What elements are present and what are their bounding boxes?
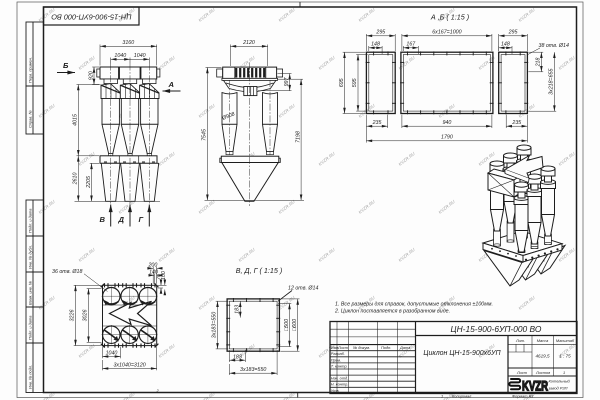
svg-text:KVZR: KVZR xyxy=(522,379,548,394)
svg-text:KVZR.RU: KVZR.RU xyxy=(38,102,57,118)
svg-text:№ докум.: № докум. xyxy=(353,345,370,350)
svg-text:183: 183 xyxy=(235,305,241,314)
svg-text:ЦН-15-900-6УП-000 ВО: ЦН-15-900-6УП-000 ВО xyxy=(451,324,542,334)
svg-text:KVZR.RU: KVZR.RU xyxy=(518,294,537,310)
svg-text:Перв. примен.: Перв. примен. xyxy=(28,57,33,83)
svg-text:997: 997 xyxy=(284,77,290,87)
svg-text:1040: 1040 xyxy=(114,53,126,59)
svg-text:235: 235 xyxy=(372,120,382,126)
svg-text:KVZR.RU: KVZR.RU xyxy=(558,54,577,70)
svg-text:148: 148 xyxy=(501,42,510,48)
svg-text:295: 295 xyxy=(375,30,385,36)
svg-text:Подп. и дата: Подп. и дата xyxy=(28,315,33,340)
svg-text:Взам. инв. №: Взам. инв. № xyxy=(28,280,33,305)
svg-text:KVZR.RU: KVZR.RU xyxy=(278,294,297,310)
svg-text:KVZR.RU: KVZR.RU xyxy=(518,6,537,22)
svg-text:Циклон ЦН-15-900х6УП: Циклон ЦН-15-900х6УП xyxy=(423,350,501,357)
svg-text:KVZR.RU: KVZR.RU xyxy=(398,246,417,262)
svg-text:3160: 3160 xyxy=(122,40,134,46)
svg-text:3x1040=3120: 3x1040=3120 xyxy=(113,362,145,368)
svg-text:Н. контр.: Н. контр. xyxy=(331,382,349,387)
svg-text:Разраб.: Разраб. xyxy=(331,351,345,356)
svg-text:1040: 1040 xyxy=(106,350,118,356)
svg-text:200: 200 xyxy=(147,262,157,268)
svg-text:Масса: Масса xyxy=(537,338,549,343)
svg-text:ЦН-15-900-6УП-000 ВО: ЦН-15-900-6УП-000 ВО xyxy=(51,13,131,22)
svg-text:Инв. № дубл.: Инв. № дубл. xyxy=(28,245,33,269)
svg-text:Подп. и дата: Подп. и дата xyxy=(28,208,33,233)
svg-text:920: 920 xyxy=(89,71,95,80)
svg-text:183: 183 xyxy=(233,354,242,360)
svg-text:KVZR.RU: KVZR.RU xyxy=(198,6,217,22)
svg-text:□600: □600 xyxy=(292,319,298,331)
svg-text:KVZR.RU: KVZR.RU xyxy=(78,246,97,262)
svg-text:Формат А3: Формат А3 xyxy=(512,393,534,398)
svg-text:Котельный: Котельный xyxy=(549,379,571,384)
svg-text:38 отв. Ø14: 38 отв. Ø14 xyxy=(539,43,569,49)
svg-text:KVZR.RU: KVZR.RU xyxy=(158,246,177,262)
svg-text:3026: 3026 xyxy=(83,310,89,322)
svg-text:1040: 1040 xyxy=(134,53,146,59)
svg-text:12 отв. Ø14: 12 отв. Ø14 xyxy=(288,285,318,291)
svg-text:Инв. № подл.: Инв. № подл. xyxy=(28,365,33,389)
svg-text:1: 1 xyxy=(563,370,565,375)
svg-text:Лист: Лист xyxy=(337,345,349,350)
svg-text:Б: Б xyxy=(63,61,69,70)
svg-text:36 отв. Ø18: 36 отв. Ø18 xyxy=(52,269,82,275)
svg-text:KVZR.RU: KVZR.RU xyxy=(198,198,217,214)
svg-text:7545: 7545 xyxy=(202,129,208,141)
svg-text:218: 218 xyxy=(536,58,542,68)
svg-text:KVZR.RU: KVZR.RU xyxy=(318,54,337,70)
svg-text:KVZR.RU: KVZR.RU xyxy=(238,246,257,262)
svg-text:4015: 4015 xyxy=(73,114,79,126)
svg-text:KVZR.RU: KVZR.RU xyxy=(158,342,177,358)
svg-text:595: 595 xyxy=(352,78,358,87)
svg-text:Масштаб: Масштаб xyxy=(556,338,575,343)
svg-text:Нач. отд.: Нач. отд. xyxy=(331,376,348,381)
svg-text:295: 295 xyxy=(508,30,518,36)
svg-text:KVZR.RU: KVZR.RU xyxy=(78,342,97,358)
svg-text:KVZR.RU: KVZR.RU xyxy=(318,150,337,166)
svg-text:695: 695 xyxy=(339,78,345,87)
svg-text:Т. контр.: Т. контр. xyxy=(331,363,348,368)
svg-text:1. Все размеры для справок, до: 1. Все размеры для справок, допустимые о… xyxy=(335,302,493,308)
svg-text:3x218=655: 3x218=655 xyxy=(549,68,555,94)
svg-text:Пров.: Пров. xyxy=(331,357,341,362)
svg-text:KVZR.RU: KVZR.RU xyxy=(198,102,217,118)
svg-text:Справ. №: Справ. № xyxy=(28,110,33,128)
svg-text:2205: 2205 xyxy=(86,176,92,189)
svg-text:□500: □500 xyxy=(284,319,290,331)
svg-text:235: 235 xyxy=(511,120,521,126)
svg-text:KVZR.RU: KVZR.RU xyxy=(318,246,337,262)
svg-text:100: 100 xyxy=(161,271,167,280)
svg-text:940: 940 xyxy=(442,120,451,126)
svg-text:KVZR.RU: KVZR.RU xyxy=(358,198,377,214)
svg-text:3x183=550: 3x183=550 xyxy=(240,367,266,373)
svg-text:7198: 7198 xyxy=(295,131,301,143)
svg-text:3226: 3226 xyxy=(70,310,76,322)
svg-text:1 : 75: 1 : 75 xyxy=(559,354,571,359)
svg-text:KVZR.RU: KVZR.RU xyxy=(158,150,177,166)
svg-text:KVZR.RU: KVZR.RU xyxy=(438,198,457,214)
svg-text:Д: Д xyxy=(118,215,125,224)
svg-text:167: 167 xyxy=(406,42,416,48)
svg-text:KVZR.RU: KVZR.RU xyxy=(78,150,97,166)
svg-text:1790: 1790 xyxy=(441,135,453,141)
svg-text:Утв.: Утв. xyxy=(331,388,340,393)
svg-text:KVZR.RU: KVZR.RU xyxy=(198,294,217,310)
svg-text:6x167=1000: 6x167=1000 xyxy=(432,30,461,36)
svg-text:В: В xyxy=(100,215,106,224)
svg-text:Копировал: Копировал xyxy=(452,393,472,398)
svg-text:В, Д, Г ( 1:15 ): В, Д, Г ( 1:15 ) xyxy=(236,266,283,275)
svg-text:Г: Г xyxy=(139,215,144,224)
svg-text:завод РЗП: завод РЗП xyxy=(548,386,568,391)
svg-text:2120: 2120 xyxy=(242,40,255,46)
svg-text:1: 1 xyxy=(441,393,443,398)
svg-text:KVZR.RU: KVZR.RU xyxy=(358,6,377,22)
svg-text:KVZR.RU: KVZR.RU xyxy=(558,150,577,166)
svg-text:А ,Б ( 1:15 ): А ,Б ( 1:15 ) xyxy=(430,13,469,22)
svg-text:4619,5: 4619,5 xyxy=(535,354,549,359)
svg-text:148: 148 xyxy=(371,42,380,48)
svg-text:А: А xyxy=(168,80,174,89)
svg-text:KVZR.RU: KVZR.RU xyxy=(278,6,297,22)
svg-text:KVZR.RU: KVZR.RU xyxy=(38,198,57,214)
svg-text:Листов: Листов xyxy=(535,370,550,375)
svg-text:KVZR.RU: KVZR.RU xyxy=(398,150,417,166)
svg-text:Лит.: Лит. xyxy=(515,338,525,343)
svg-text:KVZR.RU: KVZR.RU xyxy=(38,294,57,310)
svg-text:KVZR.RU: KVZR.RU xyxy=(278,198,297,214)
svg-text:2. Циклон поставляется в разоб: 2. Циклон поставляется в разобранном вид… xyxy=(334,308,450,314)
svg-text:3x183=550: 3x183=550 xyxy=(212,312,218,338)
svg-text:Дата: Дата xyxy=(399,345,411,350)
svg-text:KVZR.RU: KVZR.RU xyxy=(78,54,97,70)
svg-text:2610: 2610 xyxy=(73,173,79,186)
svg-text:Лист: Лист xyxy=(516,370,528,375)
svg-text:Подп.: Подп. xyxy=(381,345,391,350)
svg-text:KVZR.RU: KVZR.RU xyxy=(158,54,177,70)
svg-text:KVZR.RU: KVZR.RU xyxy=(278,102,297,118)
